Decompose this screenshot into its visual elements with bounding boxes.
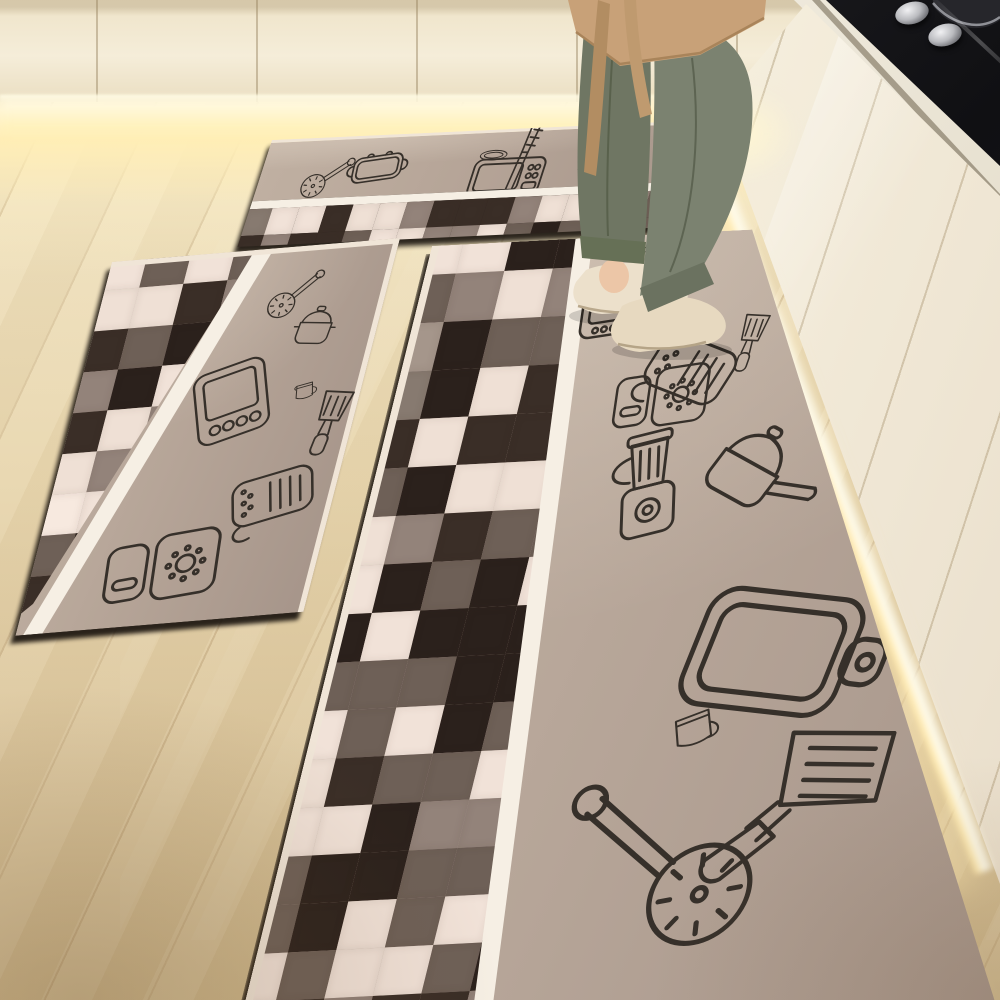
vignette [0, 0, 1000, 1000]
kitchen-scene [0, 0, 1000, 1000]
